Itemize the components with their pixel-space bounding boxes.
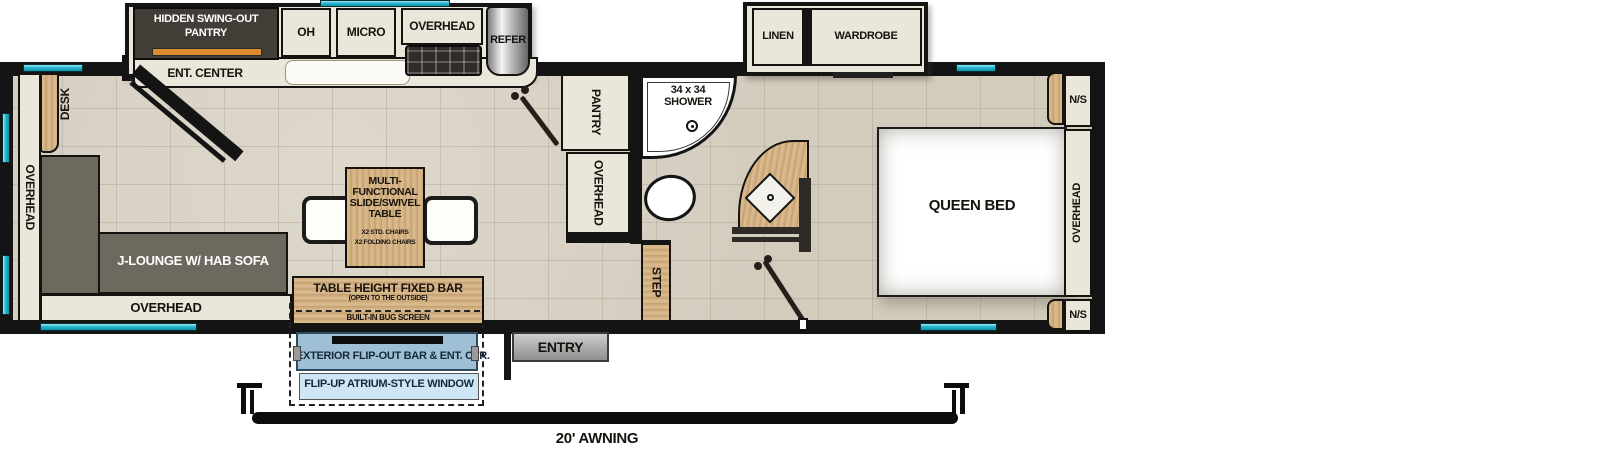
cooktop-stove — [405, 45, 482, 76]
overhead-bottom-cabinet: OVERHEAD — [40, 294, 292, 322]
atrium-window-label: FLIP-UP ATRIUM-STYLE WINDOW — [299, 379, 479, 391]
refrigerator: REFER — [486, 6, 530, 76]
table-sub-2: X2 FOLDING CHAIRS — [345, 240, 425, 247]
window-left-1 — [2, 113, 10, 163]
bug-screen-label: BUILT-IN BUG SCREEN — [296, 310, 480, 322]
awning-bracket-left-leg1 — [241, 386, 246, 414]
awning-bracket-right-leg1 — [960, 386, 965, 414]
bath-door-knob-2 — [521, 86, 529, 94]
rv-floorplan: ENT. CENTER HIDDEN SWING-OUT PANTRY OH M… — [0, 0, 1600, 451]
wardrobe-cabinet: WARDROBE — [810, 8, 922, 66]
step-label: STEP — [650, 267, 663, 297]
pantry-cabinet: PANTRY — [561, 74, 630, 151]
window-bottom-right — [920, 323, 997, 331]
sofa-label: J-LOUNGE W/ HAB SOFA — [103, 254, 283, 268]
cabinet-micro: MICRO — [336, 8, 396, 57]
fixed-bar-sub-label: (OPEN TO THE OUTSIDE) — [292, 295, 484, 302]
linen-cabinet: LINEN — [752, 8, 804, 66]
bedroom-door-knob-1 — [754, 262, 762, 270]
step: STEP — [641, 240, 671, 325]
nightstand-top: N/S — [1064, 74, 1092, 127]
overhead-left-cabinet: OVERHEAD — [18, 73, 41, 322]
desk — [40, 73, 59, 153]
vanity-front-rail-1 — [732, 227, 806, 234]
exterior-bar-label: EXTERIOR FLIP-OUT BAR & ENT. CTR. — [296, 351, 478, 363]
overhead-right-label: OVERHEAD — [1072, 183, 1084, 243]
cabinet-oh: OH — [281, 8, 331, 57]
ns-top-label: N/S — [1069, 95, 1086, 107]
overhead-bottom-label: OVERHEAD — [130, 301, 201, 315]
bar-hinge-right — [471, 346, 479, 361]
nightstand-wood-top — [1047, 72, 1064, 125]
bath-door-knob-1 — [511, 92, 519, 100]
window-left-2 — [2, 255, 10, 315]
micro-label: MICRO — [347, 26, 386, 39]
overhead-right-cabinet: OVERHEAD — [1064, 129, 1092, 297]
bedroom-door-knob-2 — [764, 255, 772, 263]
window-bottom-left — [40, 323, 197, 331]
bedroom-door-hinge — [798, 318, 808, 331]
oh-label: OH — [297, 26, 314, 39]
linen-label: LINEN — [762, 31, 794, 43]
pantry-orange-bar — [152, 48, 262, 56]
chair-right — [423, 196, 478, 245]
refer-label: REFER — [490, 35, 526, 47]
table-sub-1: X2 STD. CHAIRS — [345, 230, 425, 237]
entry-label: ENTRY — [538, 340, 583, 355]
overhead-mid-cabinet: OVERHEAD — [566, 152, 630, 234]
hidden-pantry-label-1: HIDDEN SWING-OUT — [136, 14, 276, 26]
awning-label: 20' AWNING — [517, 431, 677, 447]
cabinet-overhead: OVERHEAD — [401, 8, 483, 45]
hidden-pantry-label-2: PANTRY — [136, 28, 276, 40]
fixed-bar-label: TABLE HEIGHT FIXED BAR — [292, 282, 484, 295]
ns-bottom-label: N/S — [1069, 310, 1086, 322]
shower-drain — [686, 120, 698, 132]
shower-label-1: 34 x 34 — [648, 85, 728, 97]
pantry-label: PANTRY — [589, 89, 602, 135]
j-lounge-vertical — [40, 155, 100, 295]
slide-rail — [833, 72, 893, 78]
window-kitchen-slide — [320, 0, 450, 7]
nightstand-wood-bottom — [1047, 299, 1064, 330]
exterior-bar-shelf — [332, 336, 443, 344]
kitchen-sink-counter — [285, 60, 410, 85]
kitchen-overhead-label: OVERHEAD — [409, 20, 475, 33]
desk-label: DESK — [59, 88, 72, 120]
window-top-right — [956, 64, 996, 72]
vanity-front-rail-2 — [732, 237, 806, 242]
overhead-mid-label: OVERHEAD — [592, 160, 605, 226]
queen-bed-label: QUEEN BED — [877, 198, 1067, 214]
ent-center-label: ENT. CENTER — [150, 67, 260, 80]
window-top-left — [23, 64, 83, 72]
awning-bar — [252, 412, 958, 424]
bar-hinge-left — [293, 346, 301, 361]
overhead-left-label: OVERHEAD — [23, 165, 36, 231]
nightstand-bottom: N/S — [1064, 299, 1092, 332]
vanity-faucet — [767, 194, 774, 201]
table-label-4: TABLE — [345, 209, 425, 220]
awning-bracket-right-cap — [944, 383, 969, 388]
wall-right — [1092, 62, 1105, 334]
entry-door-leaf — [504, 330, 511, 380]
entry-step: ENTRY — [512, 332, 609, 362]
shower-label-2: SHOWER — [648, 97, 728, 109]
awning-bracket-left-leg2 — [250, 390, 254, 414]
wardrobe-label: WARDROBE — [835, 31, 898, 43]
awning-bracket-right-leg2 — [952, 390, 956, 414]
